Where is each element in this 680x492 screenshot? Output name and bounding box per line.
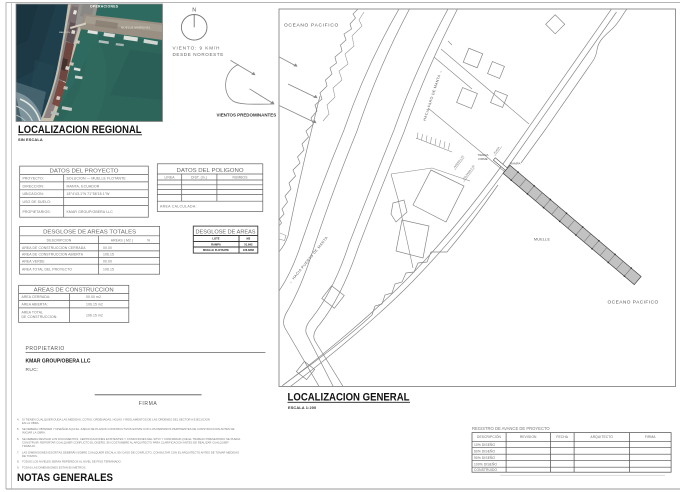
svg-text:PROPIETARIO: PROPIETARIO [26,346,65,352]
svg-text:60% DISEÑO: 60% DISEÑO [474,448,495,453]
svg-text:DATOS DEL POLIGONO: DATOS DEL POLIGONO [177,168,244,174]
svg-text:106.15: 106.15 [103,268,114,272]
svg-text:EN LA OBRA.: EN LA OBRA. [22,421,40,425]
svg-text:MANTA, ECUADOR: MANTA, ECUADOR [67,184,100,188]
svg-text:DESCRIPCIÓN: DESCRIPCIÓN [477,434,502,439]
svg-text:10% DISEÑO: 10% DISEÑO [474,442,495,447]
svg-text:AREAS DE CONSTRUCCION: AREAS DE CONSTRUCCION [34,288,114,294]
svg-text:LAS DIMENSIONES ESCRITAS DEBER: LAS DIMENSIONES ESCRITAS DEBERÁN SOBRE C… [22,450,239,454]
svg-text:ARQUITECTO: ARQUITECTO [590,435,613,439]
svg-text:SOLUCION — MUELLE FLOTANTE: SOLUCION — MUELLE FLOTANTE [67,177,127,181]
svg-text:AREA TOTAL: AREA TOTAL [22,311,44,315]
svg-text:MUELLE MARGINAL: MUELLE MARGINAL [121,26,151,30]
svg-text:5.: 5. [17,427,20,431]
svg-text:DESGLOSE DE AREAS: DESGLOSE DE AREAS [196,229,256,235]
svg-text:DESDE NOROESTE: DESDE NOROESTE [173,52,224,57]
svg-text:DESCRIPCION: DESCRIPCION [47,239,72,243]
svg-text:RAMPA: RAMPA [510,162,520,166]
svg-text:FECHA: FECHA [556,435,568,439]
svg-text:8.: 8. [17,460,20,464]
svg-text:FIRME: FIRME [478,157,487,161]
svg-text:AREA DE CONSTRUCCION ABIERTA: AREA DE CONSTRUCCION ABIERTA [22,253,84,257]
svg-text:RAMPA: RAMPA [211,242,221,246]
svg-text:RUC:: RUC: [26,367,39,373]
svg-text:18°4'43.1"N 71°58'18.1"W: 18°4'43.1"N 71°58'18.1"W [67,192,111,196]
svg-text:RUMBOS: RUMBOS [232,175,248,179]
svg-text:CONSTRUIR. REPORTAR CUALQUIER: CONSTRUIR. REPORTAR CUALQUIER CONFLICTO … [22,440,229,445]
svg-text:90% DISEÑO: 90% DISEÑO [474,455,495,460]
svg-text:AREA DE CONSTRUCCION CERRADA: AREA DE CONSTRUCCION CERRADA [22,246,86,250]
svg-text:%: % [147,239,150,243]
svg-text:00.00: 00.00 [103,246,112,250]
svg-text:INICIAR LA OBRA.: INICIAR LA OBRA. [22,431,46,435]
svg-text:51.842: 51.842 [244,242,253,246]
svg-text:OCEANO PACIFICO: OCEANO PACIFICO [284,23,339,29]
svg-text:MUELLE FLOTANTE: MUELLE FLOTANTE [203,248,229,252]
svg-text:VIENTOS PREDOMINANTES: VIENTOS PREDOMINANTES [217,112,277,117]
svg-text:AREAS ( M2 ): AREAS ( M2 ) [111,239,134,243]
svg-text:OPERACIONES: OPERACIONES [90,5,119,9]
svg-text:N: N [192,8,196,14]
svg-text:100% DISEÑO: 100% DISEÑO [474,461,497,466]
svg-text:LOCALIZACION REGIONAL: LOCALIZACION REGIONAL [18,124,142,136]
svg-text:UBICACION:: UBICACION: [23,192,44,196]
svg-text:FIRMA: FIRMA [645,435,656,439]
svg-text:AREA VERDE: AREA VERDE [22,259,45,263]
svg-text:9.: 9. [17,466,20,470]
svg-text:6.: 6. [17,437,20,441]
svg-text:M2: M2 [247,237,251,241]
svg-text:AREA ABIERTA:: AREA ABIERTA: [22,302,48,306]
svg-text:00.00: 00.00 [103,259,112,263]
svg-text:106.15 m2: 106.15 m2 [86,314,103,318]
svg-text:DE CONSTRUCCION:: DE CONSTRUCCION: [22,315,58,319]
svg-text:REGISTRO DE AVANCE DE PROYECTO: REGISTRO DE AVANCE DE PROYECTO [472,426,550,431]
svg-text:DIST. (m.): DIST. (m.) [191,175,207,179]
svg-text:MUELLE: MUELLE [534,238,550,242]
svg-text:CONSTRUIDO: CONSTRUIDO [474,468,497,472]
svg-text:ESCALA 1:200: ESCALA 1:200 [288,405,316,410]
svg-text:KMAR GROUP/OBERA LLC: KMAR GROUP/OBERA LLC [26,359,91,365]
svg-text:KMAR GROUP/OBERA LLC: KMAR GROUP/OBERA LLC [67,210,114,214]
svg-text:TRABAJO.: TRABAJO. [22,444,36,448]
svg-text:DESGLOSE DE AREAS TOTALES: DESGLOSE DE AREAS TOTALES [43,230,136,236]
svg-text:DATOS DEL PROYECTO: DATOS DEL PROYECTO [50,169,119,175]
svg-text:AREA CALCULADA:: AREA CALCULADA: [160,205,197,209]
svg-text:SIN ESCALA: SIN ESCALA [18,137,43,142]
svg-text:106.8366: 106.8366 [243,248,255,252]
svg-text:FIRMA: FIRMA [139,401,158,407]
svg-text:LINEA: LINEA [164,175,175,179]
svg-text:MALECON: MALECON [59,31,70,34]
svg-text:106.15: 106.15 [103,253,114,257]
svg-text:VIENTO: 9 KM/H: VIENTO: 9 KM/H [173,46,220,51]
svg-text:PROPIETARIOS:: PROPIETARIOS: [23,210,51,214]
svg-text:LOCALIZACION GENERAL: LOCALIZACION GENERAL [288,392,410,404]
svg-text:TODOS LOS NIVELES SERAN REFERI: TODOS LOS NIVELES SERAN REFERIDOS AL NIV… [22,460,122,464]
svg-text:00.00 m2: 00.00 m2 [86,295,101,299]
svg-text:AREA CERRADA:: AREA CERRADA: [22,295,51,299]
svg-text:LOTE: LOTE [212,237,219,241]
svg-text:SE DEBERA OBTENER Y DISEÑAR AQ: SE DEBERA OBTENER Y DISEÑAR AQUI EL JUEG… [22,426,235,431]
svg-text:SI TIENEN CUALQUIER DUDA LAS M: SI TIENEN CUALQUIER DUDA LAS MEDIDAS, CO… [22,418,210,422]
svg-text:7.: 7. [17,450,20,454]
svg-text:4.: 4. [17,418,20,422]
svg-text:NOTAS GENERALES: NOTAS GENERALES [17,472,113,484]
svg-text:AREA TOTAL DEL PROYECTO: AREA TOTAL DEL PROYECTO [22,268,72,272]
svg-text:DIRECCION:: DIRECCION: [23,184,45,188]
svg-text:PROYECTO:: PROYECTO: [23,177,44,181]
svg-text:TODAS LAS DIMENSIONES ESTAN EN: TODAS LAS DIMENSIONES ESTAN EN METROS. [22,466,86,470]
svg-text:REVISION: REVISION [520,435,537,439]
svg-text:OCEANO PACIFICO: OCEANO PACIFICO [608,300,659,306]
svg-text:DE TOMOS.: DE TOMOS. [22,454,38,458]
svg-text:106.15 m2: 106.15 m2 [86,302,103,306]
svg-text:USO DE SUELO:: USO DE SUELO: [23,200,52,204]
